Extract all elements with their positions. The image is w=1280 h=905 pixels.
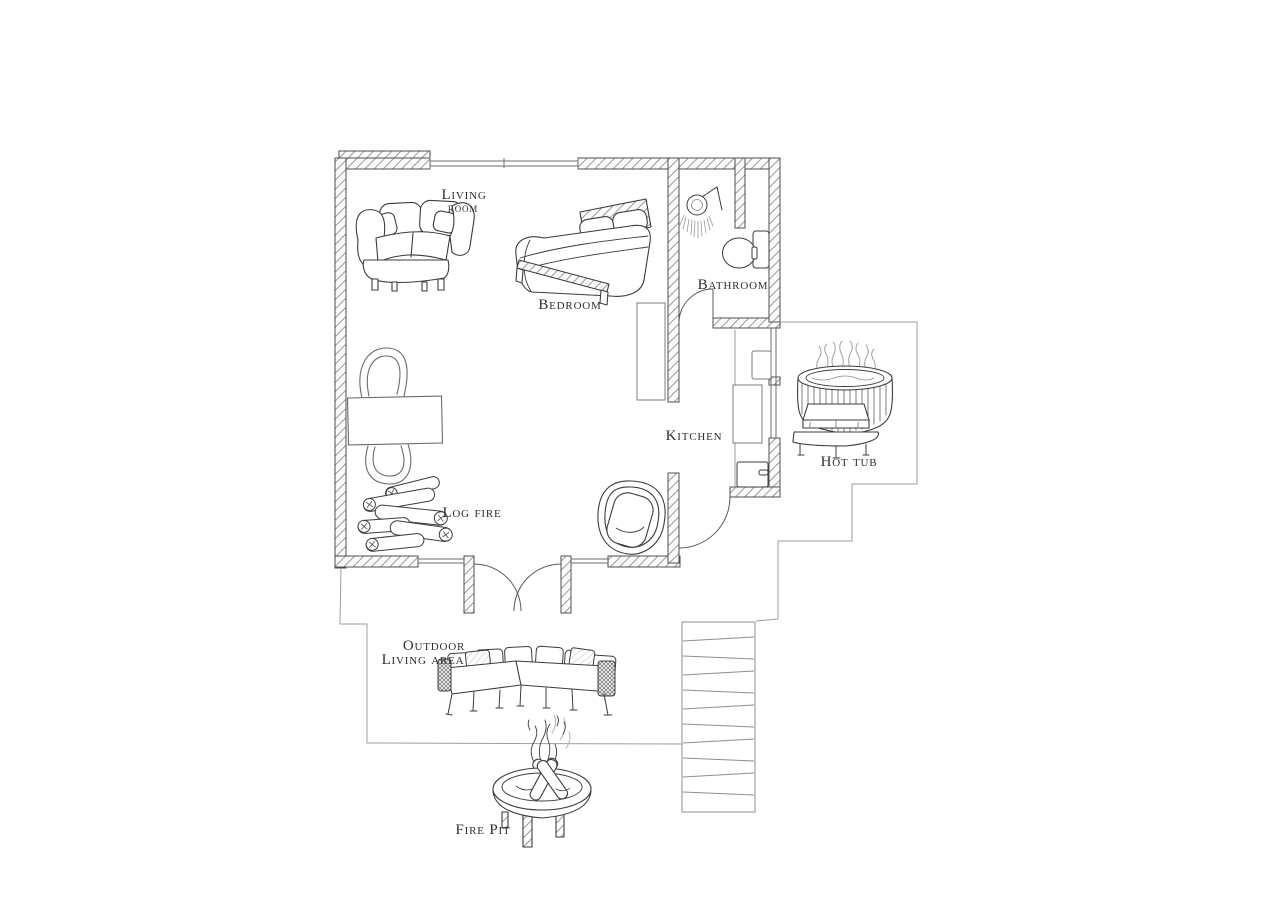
- toilet-hinge: [752, 247, 757, 259]
- wall-corridor-upper: [668, 158, 679, 402]
- bedroom-label: Bedroom: [538, 297, 601, 313]
- fire-pit-label: Fire Pit: [456, 822, 511, 838]
- kitchen-oven-handle: [759, 470, 768, 475]
- outdoor-living-label-line2: Living area: [382, 652, 465, 668]
- stairs: [682, 622, 755, 812]
- door-post-right: [561, 556, 571, 613]
- wardrobe-sketch: [637, 303, 665, 400]
- door-post-left: [464, 556, 474, 613]
- kitchen-sink: [752, 351, 771, 379]
- floorplan-canvas: Living room Bedroom Bathroom Kitchen Hot…: [0, 0, 1280, 905]
- wall-corridor-lower: [668, 473, 679, 563]
- hot-tub-label: Hot tub: [821, 454, 878, 470]
- dining-table: [348, 396, 443, 445]
- stairs-outline: [682, 622, 755, 812]
- kitchen-counter-unit: [733, 385, 762, 443]
- log-fire-label: Log fire: [442, 505, 501, 521]
- hanging-chair-sketch: [598, 481, 665, 554]
- background: [0, 0, 1280, 905]
- living-room-label-line2: room: [448, 200, 478, 215]
- toilet-bowl: [723, 238, 756, 268]
- shower-head-inner: [692, 200, 703, 211]
- wall-top-left: [335, 158, 430, 169]
- wall-right-upper: [769, 158, 780, 322]
- floorplan-drawing: Living room Bedroom Bathroom Kitchen Hot…: [0, 0, 1280, 905]
- wall-shower-partition: [735, 158, 745, 228]
- wall-left: [335, 158, 346, 568]
- kitchen-label: Kitchen: [666, 428, 723, 444]
- wall-bottom-left: [335, 556, 418, 567]
- outdoor-sofa-arm-right: [598, 661, 615, 696]
- wall-kitchen-bottom: [730, 487, 780, 497]
- bathroom-label: Bathroom: [698, 277, 769, 293]
